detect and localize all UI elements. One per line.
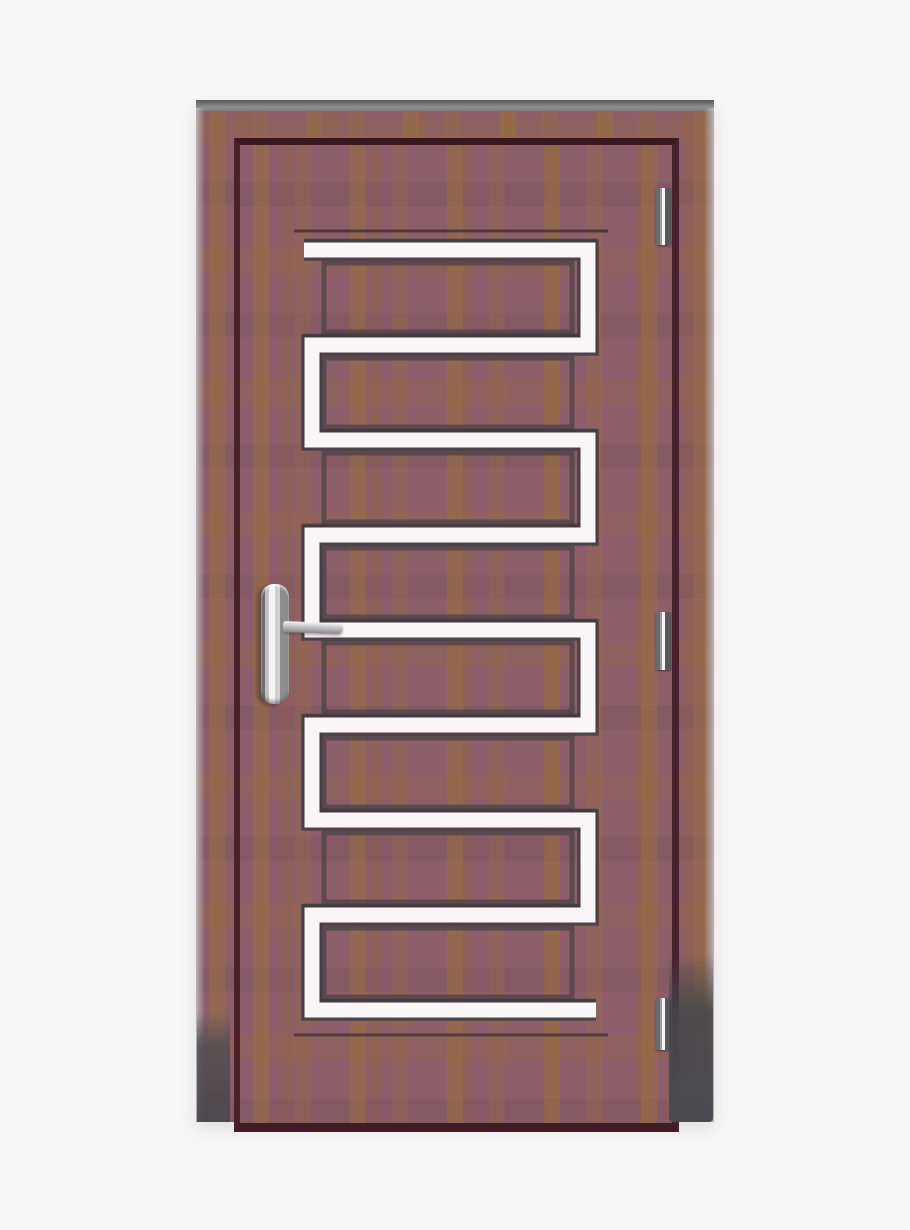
door-leaf [234,138,679,1132]
panel-groove [324,738,572,807]
handle-lever [283,621,343,634]
panel-groove [324,358,572,427]
hinge-top [656,188,671,245]
hinge-middle [656,612,671,670]
right-jamb-shadow [669,952,713,1122]
panel-groove [324,548,572,617]
frame-top-edge [196,100,714,111]
panel-groove [324,453,572,522]
panel-groove [324,263,572,332]
panel-groove [324,928,572,997]
panel-groove [324,643,572,712]
frame-left-edge [196,108,205,1122]
handle-backplate [261,584,289,704]
door-product-photo [0,0,910,1230]
left-jamb-shadow [197,1012,230,1122]
panel-groove [324,833,572,902]
inlay-stripe [304,250,596,1010]
